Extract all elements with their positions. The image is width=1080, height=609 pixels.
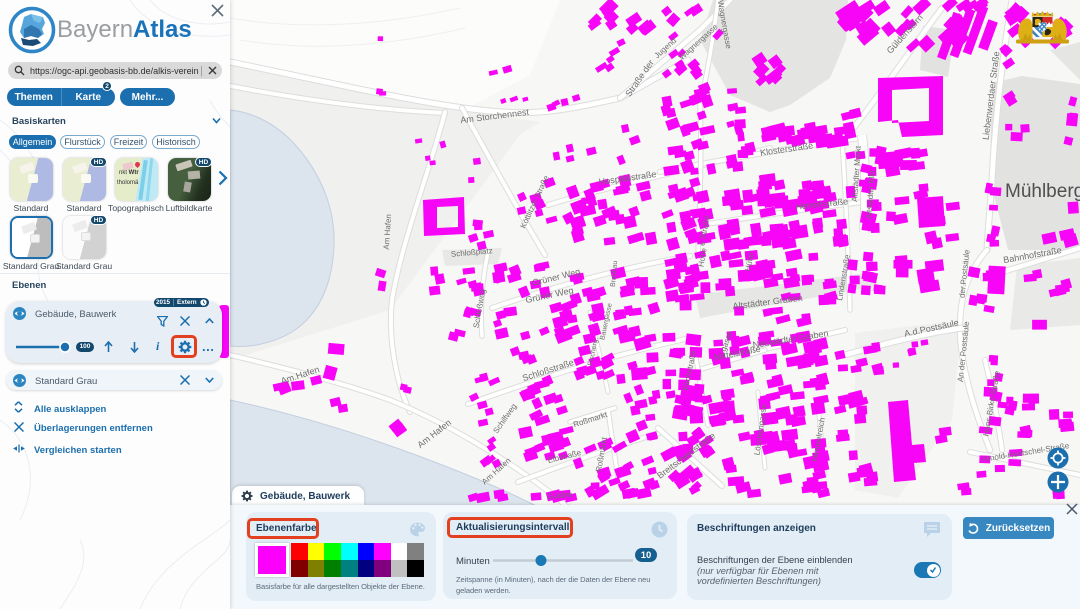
svg-text:BayernAtlas: BayernAtlas (57, 16, 192, 43)
svg-text:Mühlberg: Mühlberg (1005, 181, 1080, 202)
